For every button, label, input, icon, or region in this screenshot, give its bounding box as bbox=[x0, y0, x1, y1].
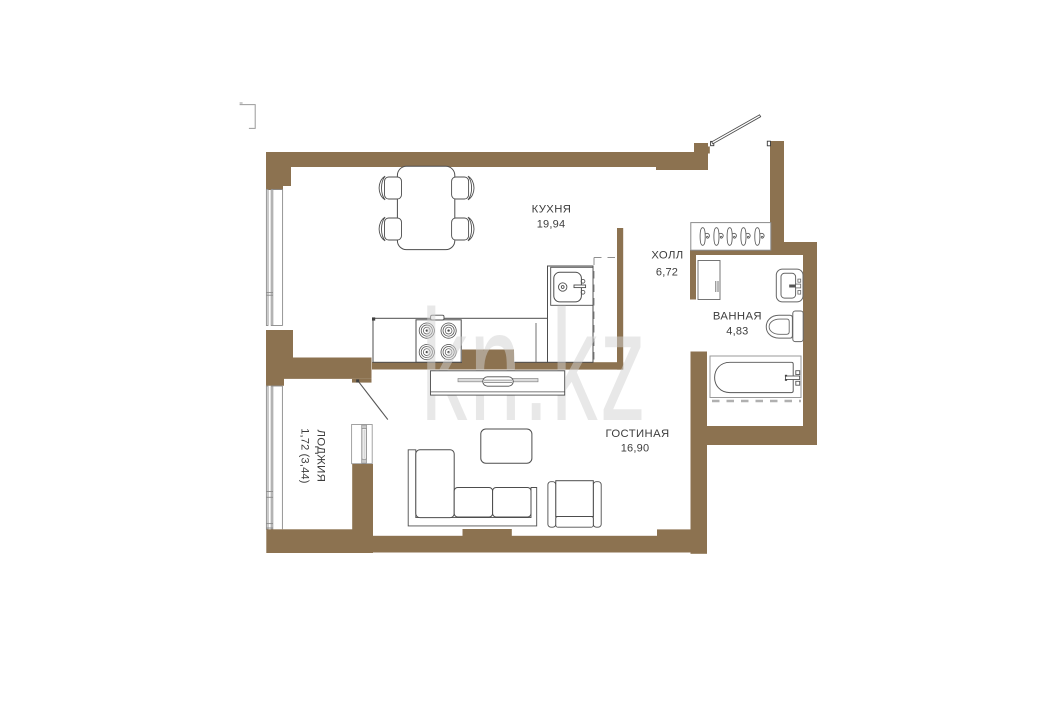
svg-text:16,90: 16,90 bbox=[621, 442, 650, 454]
svg-text:ХОЛЛ: ХОЛЛ bbox=[651, 249, 683, 261]
svg-text:ВАННАЯ: ВАННАЯ bbox=[713, 311, 762, 323]
svg-text:4,83: 4,83 bbox=[726, 325, 748, 337]
svg-text:1,72 (3,44): 1,72 (3,44) bbox=[298, 428, 310, 483]
svg-text:ЛОДЖИЯ: ЛОДЖИЯ bbox=[315, 430, 327, 483]
svg-text:КУХНЯ: КУХНЯ bbox=[532, 203, 572, 215]
svg-text:ГОСТИНАЯ: ГОСТИНАЯ bbox=[605, 428, 669, 440]
svg-text:19,94: 19,94 bbox=[537, 218, 566, 230]
svg-text:6,72: 6,72 bbox=[656, 266, 678, 278]
